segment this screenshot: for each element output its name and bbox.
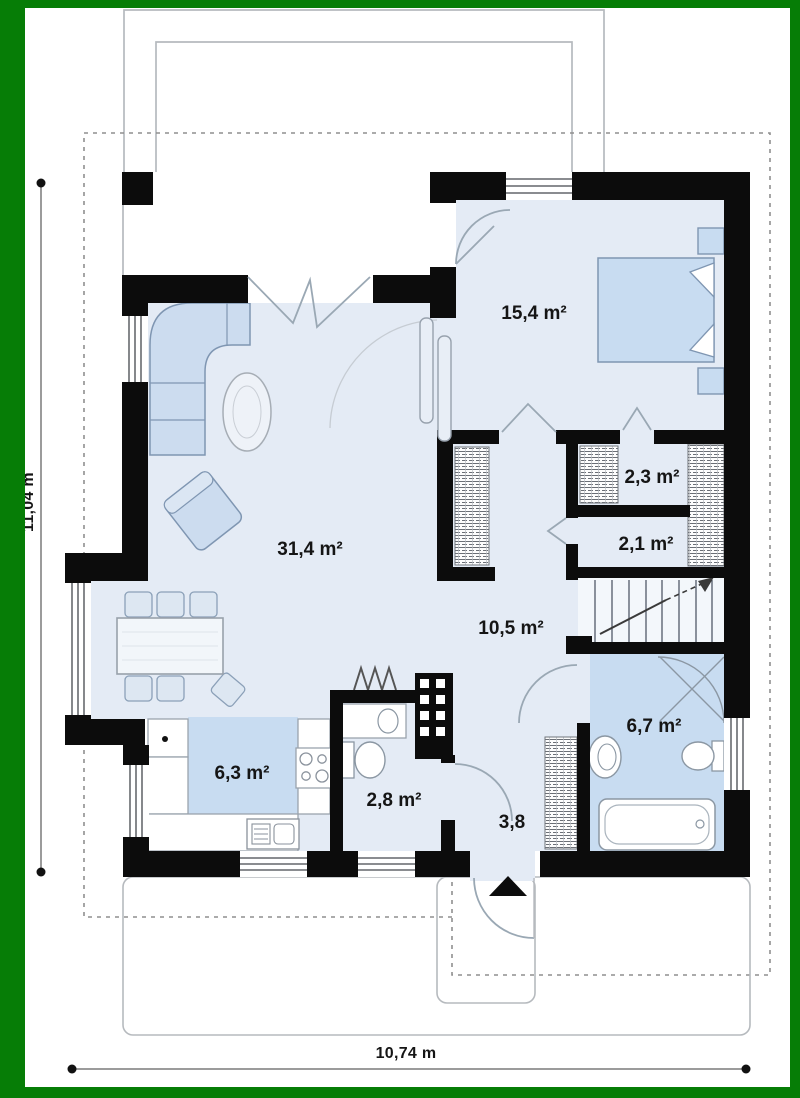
- hall-area-label: 10,5 m²: [478, 618, 543, 639]
- hall-wardrobe: [455, 447, 489, 565]
- oven: [247, 819, 299, 849]
- kitchen-window-bottom: [240, 851, 307, 877]
- toilet: [682, 741, 724, 771]
- nightstand: [698, 368, 724, 394]
- living-window-left-bay: [65, 583, 91, 715]
- floor-plan-drawing: 11,04 m 10,74 m: [0, 0, 800, 1098]
- bed: [598, 258, 714, 362]
- bedroom-window: [506, 172, 572, 200]
- kitchen-sink: [162, 736, 168, 742]
- living-window-left-upper: [122, 316, 148, 382]
- kitchen-area-label: 6,3 m²: [215, 763, 270, 784]
- wc-area-label: 2,8 m²: [367, 790, 422, 811]
- stove: [296, 748, 332, 788]
- bathroom-area-label: 6,7 m²: [627, 716, 682, 737]
- corridor-area-label: 2,1 m²: [619, 534, 674, 555]
- closet-wardrobe-right: [688, 444, 724, 566]
- wc-window-bottom: [358, 851, 415, 877]
- wc-basin: [342, 704, 406, 738]
- nightstand: [698, 228, 724, 254]
- bathtub: [599, 799, 715, 850]
- width-dimension-label: 10,74 m: [376, 1045, 437, 1062]
- wc-toilet: [342, 742, 385, 778]
- kitchen-window-left: [123, 765, 149, 837]
- porch-column: [122, 172, 153, 205]
- living-room-area-label: 31,4 m²: [277, 539, 342, 560]
- floor-plan-page: 11,04 m 10,74 m: [0, 0, 800, 1098]
- entry-area-label: 3,8: [499, 812, 525, 833]
- closet-area-label: 2,3 m²: [625, 467, 680, 488]
- closet-wardrobe-left: [580, 446, 618, 503]
- bathroom-sink: [589, 736, 621, 778]
- bathroom-window-right: [724, 718, 750, 790]
- entry-wardrobe: [545, 737, 577, 849]
- oval-rug: [223, 373, 271, 451]
- bedroom-area-label: 15,4 m²: [501, 303, 566, 324]
